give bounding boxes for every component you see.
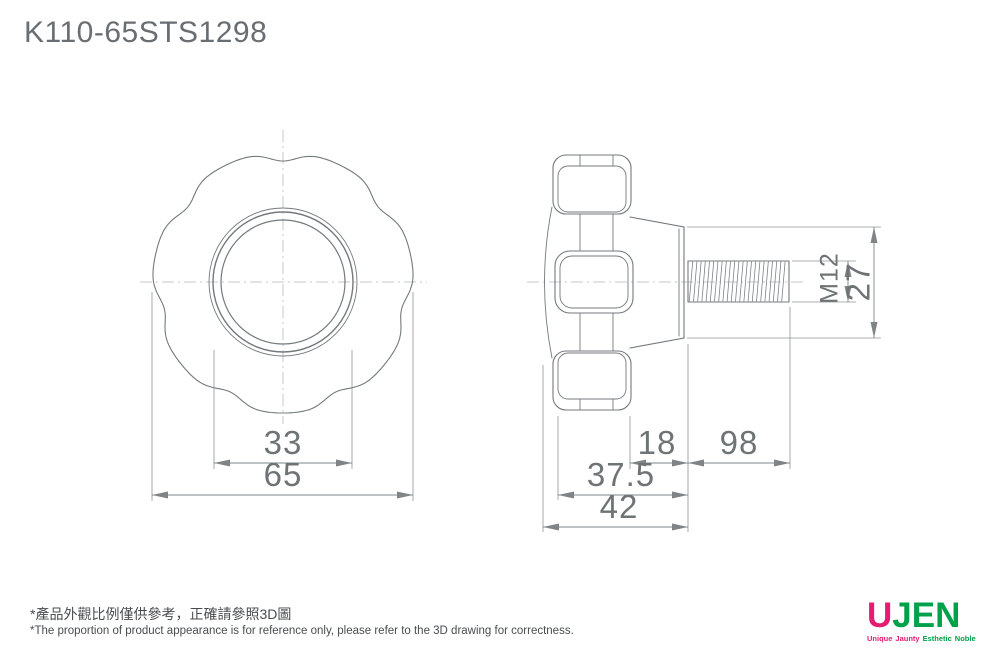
ujen-logo: UJEN UniqueJauntyEstheticNoble <box>867 598 995 643</box>
logo-tagline: UniqueJauntyEstheticNoble <box>867 634 995 643</box>
logo-tagline-word: Jaunty <box>895 634 919 643</box>
technical-drawing <box>0 0 1001 667</box>
logo-tagline-word: Esthetic <box>923 634 952 643</box>
logo-brand-u: U <box>867 598 892 633</box>
logo-brand-text: UJEN <box>867 598 995 633</box>
dim-27-label: 27 <box>842 263 875 302</box>
thread-hatch <box>689 262 785 302</box>
bottom-lobe-inner-line <box>558 353 626 399</box>
dim-98-label: 98 <box>720 426 759 459</box>
logo-tagline-word: Noble <box>955 634 976 643</box>
top-lobe-inner-line <box>558 166 626 212</box>
bottom-lobe-outline <box>553 351 631 410</box>
logo-brand-jen: JEN <box>892 598 960 633</box>
dim-37-5-label: 37.5 <box>587 458 655 491</box>
top-lobe-outline <box>553 155 631 214</box>
side-view <box>527 155 881 532</box>
drawing-page: K110-65STS1298 <box>0 0 1001 667</box>
dim-33-label: 33 <box>264 426 303 459</box>
footnote-english: *The proportion of product appearance is… <box>30 625 574 637</box>
dim-18-label: 18 <box>638 426 677 459</box>
logo-tagline-word: Unique <box>867 634 892 643</box>
footnote-chinese: *產品外觀比例僅供參考，正確請參照3D圖 <box>30 604 291 624</box>
dim-65-label: 65 <box>264 458 303 491</box>
dim-42-label: 42 <box>600 490 639 523</box>
